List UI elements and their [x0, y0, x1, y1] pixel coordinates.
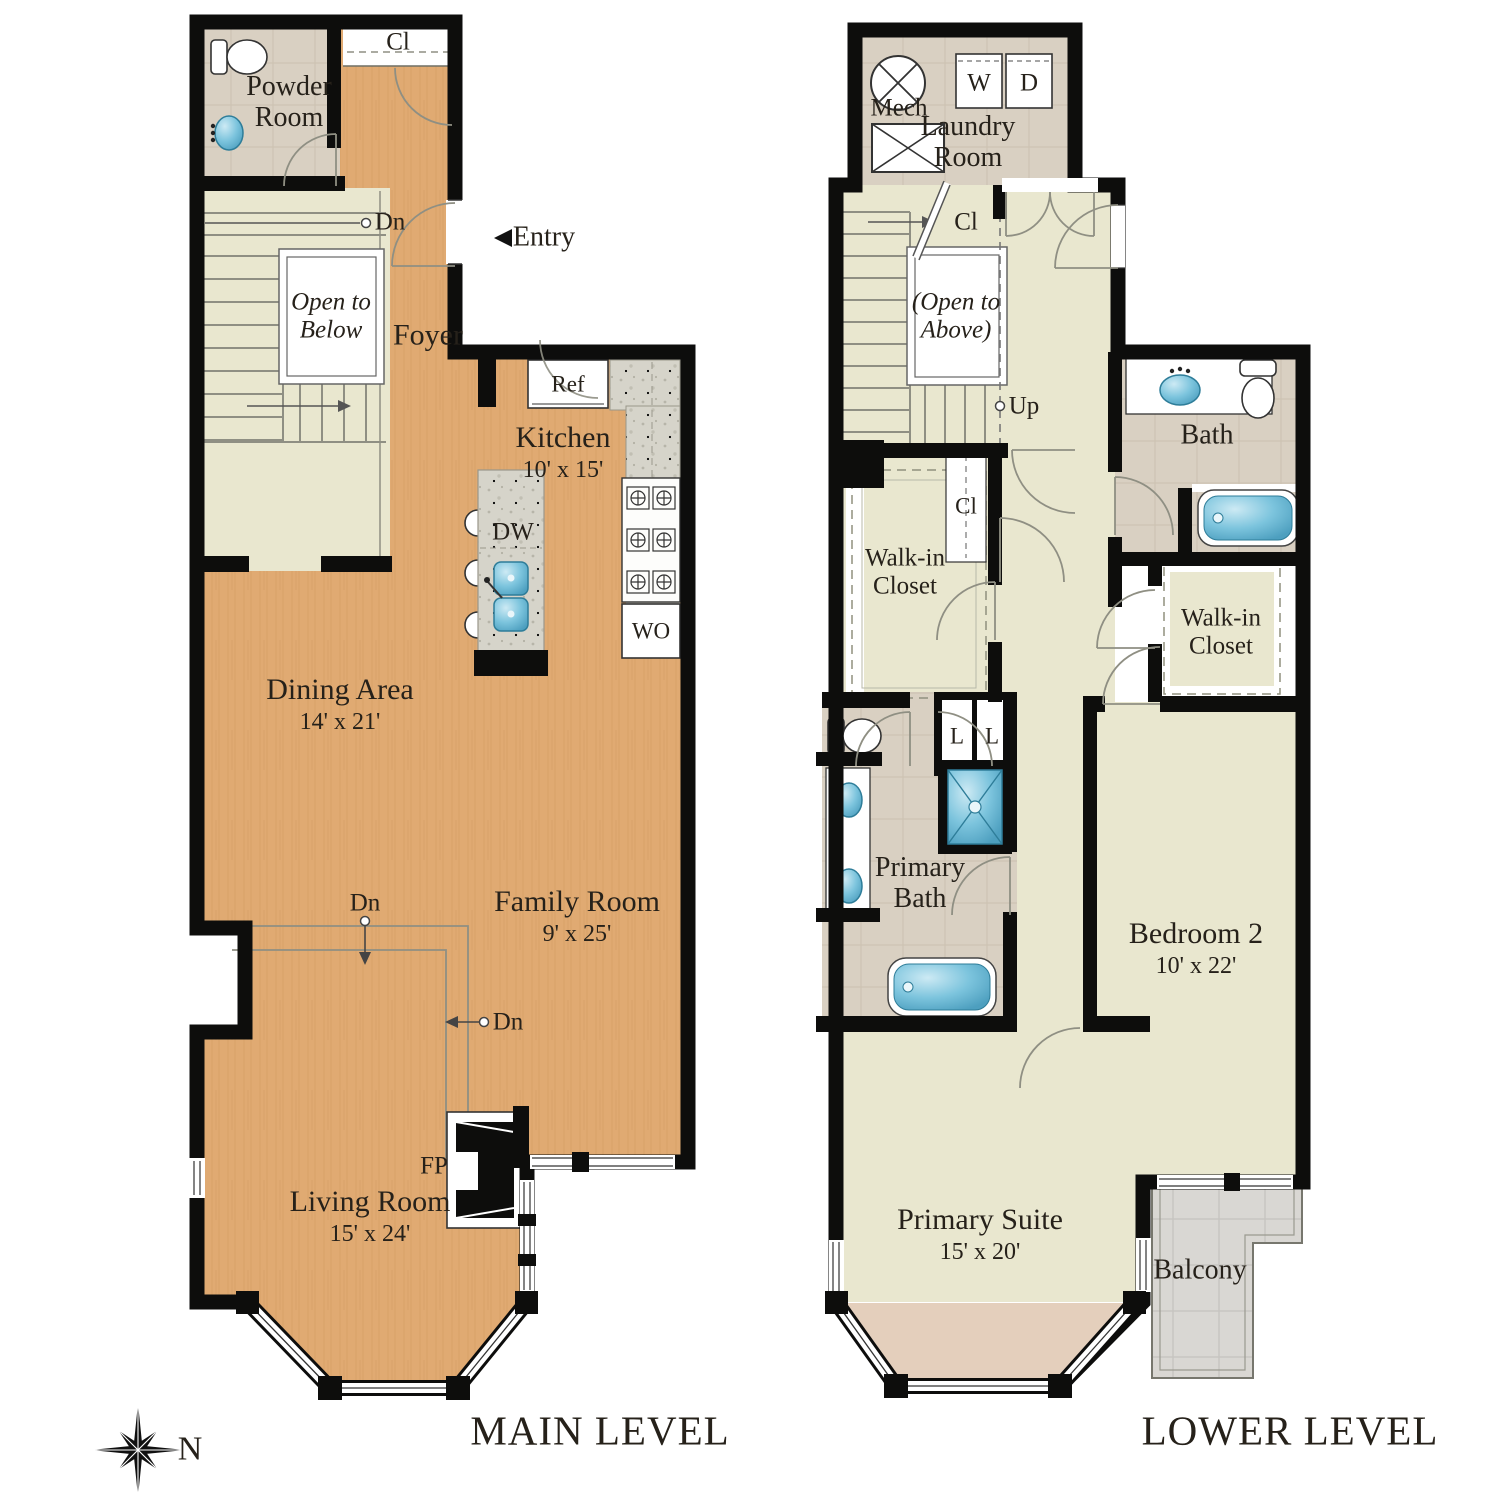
- open-to-above-label: (Open to Above): [896, 289, 1016, 344]
- shower-icon: [938, 760, 1012, 854]
- bath-label: Bath: [1181, 421, 1234, 452]
- living-room-label: Living Room 15' x 24': [290, 1185, 451, 1247]
- room-name: Family Room: [494, 885, 660, 918]
- open-to-below-label: Open to Below: [276, 289, 386, 344]
- kitchen-counter: [610, 360, 680, 410]
- primary-tub-icon: [888, 958, 996, 1016]
- dining-area-label: Dining Area 14' x 21': [266, 673, 413, 735]
- foyer-label: Foyer: [393, 319, 463, 352]
- main-closet-label: Cl: [386, 28, 410, 56]
- room-name: Dining Area: [266, 673, 413, 706]
- primary-bath-label: Primary Bath: [855, 853, 985, 915]
- entry-label: Entry: [513, 223, 575, 254]
- kitchen-counter-side: [626, 406, 680, 480]
- bath-tub-icon: [1192, 484, 1298, 546]
- compass-rose-icon: [96, 1408, 180, 1492]
- laundry-room-label: Laundry Room: [893, 112, 1043, 174]
- linen-1-label: L: [950, 723, 964, 748]
- room-name: Bedroom 2: [1129, 917, 1263, 950]
- fireplace-icon: [447, 1106, 529, 1228]
- floorplan-canvas: [0, 0, 1500, 1500]
- stove-icon: [622, 478, 680, 602]
- small-closet-label: Cl: [955, 493, 977, 518]
- room-name: Kitchen: [516, 421, 611, 454]
- balcony-label: Balcony: [1153, 1256, 1246, 1287]
- bath-toilet-icon: [1240, 360, 1276, 418]
- room-dim: 10' x 22': [1129, 953, 1263, 979]
- linen-2-label: L: [985, 723, 999, 748]
- lower-closet-hall-label: Cl: [954, 208, 978, 236]
- primary-suite-label: Primary Suite 15' x 20': [897, 1203, 1063, 1265]
- dryer-label: D: [1020, 69, 1038, 97]
- island-end-wall: [474, 650, 548, 676]
- fireplace-label: FP: [420, 1152, 448, 1180]
- room-dim: 10' x 15': [516, 457, 611, 483]
- wo-label: WO: [632, 618, 670, 643]
- powder-room-label: Powder Room: [219, 72, 359, 134]
- family-room-label: Family Room 9' x 25': [494, 885, 660, 947]
- room-name: Primary Suite: [897, 1203, 1063, 1236]
- entry-arrow-icon: [494, 229, 512, 247]
- bedroom2-label: Bedroom 2 10' x 22': [1129, 917, 1263, 979]
- lower-level-title: LOWER LEVEL: [1142, 1408, 1439, 1453]
- room-name: Living Room: [290, 1185, 451, 1218]
- up-label: Up: [1009, 392, 1040, 420]
- main-level-title: MAIN LEVEL: [470, 1408, 729, 1453]
- step-dn-label-1: Dn: [350, 889, 381, 917]
- lower-level-plan: [816, 30, 1310, 1398]
- room-dim: 15' x 24': [290, 1221, 451, 1247]
- stairs-dn-label: Dn: [375, 208, 406, 236]
- step-dn-label-2: Dn: [493, 1008, 524, 1036]
- room-dim: 15' x 20': [897, 1239, 1063, 1265]
- dw-label: DW: [492, 518, 534, 546]
- room-dim: 9' x 25': [494, 921, 660, 947]
- compass-north-label: N: [178, 1430, 203, 1467]
- ref-label: Ref: [551, 371, 584, 396]
- walkin-closet-right-label: Walk-in Closet: [1166, 605, 1276, 660]
- washer-label: W: [967, 69, 991, 97]
- powder-toilet-icon: [211, 40, 267, 74]
- floorplan-page: Cl Powder Room Dn Entry Open to Below Fo…: [0, 0, 1500, 1500]
- room-dim: 14' x 21': [266, 709, 413, 735]
- kitchen-label: Kitchen 10' x 15': [516, 421, 611, 483]
- walkin-closet-left-label: Walk-in Closet: [850, 545, 960, 600]
